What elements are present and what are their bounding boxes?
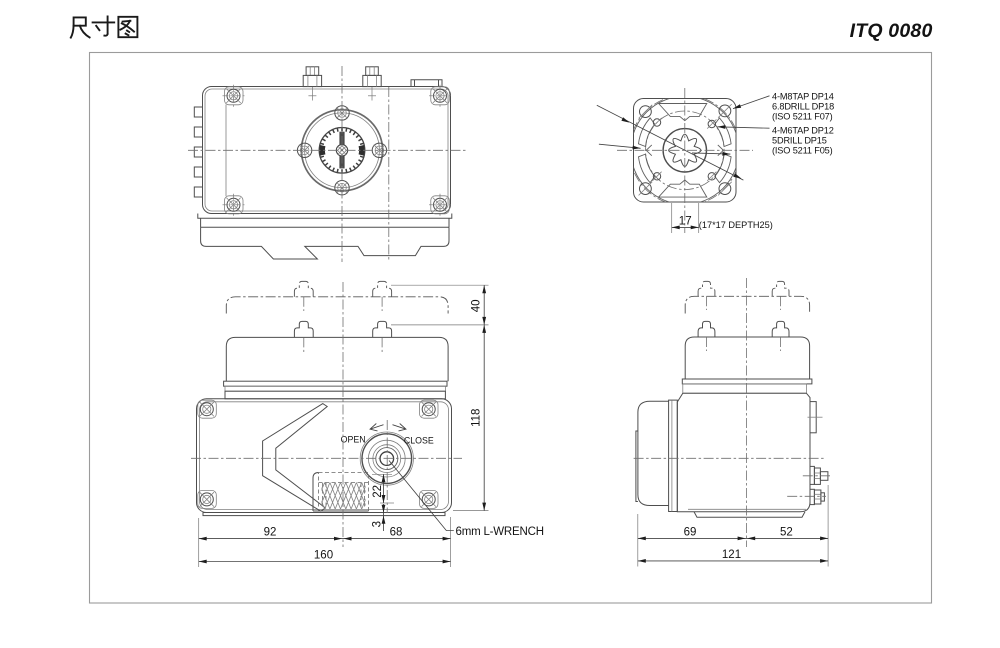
- svg-text:92: 92: [264, 527, 277, 539]
- svg-text:52: 52: [780, 526, 793, 538]
- svg-text:22: 22: [372, 485, 384, 498]
- svg-text:69: 69: [684, 526, 697, 538]
- svg-text:4-M8TAP DP14: 4-M8TAP DP14: [772, 92, 834, 102]
- svg-text:5DRILL DP15: 5DRILL DP15: [772, 136, 827, 146]
- svg-text:121: 121: [722, 549, 741, 561]
- svg-text:6mm L-WRENCH: 6mm L-WRENCH: [456, 526, 544, 538]
- svg-text:(17*17 DEPTH25): (17*17 DEPTH25): [699, 220, 773, 230]
- svg-text:(ISO 5211 F07): (ISO 5211 F07): [772, 112, 833, 122]
- svg-text:(ISO 5211 F05): (ISO 5211 F05): [772, 146, 833, 156]
- svg-text:4-M6TAP DP12: 4-M6TAP DP12: [772, 126, 834, 136]
- svg-text:68: 68: [390, 527, 403, 539]
- svg-text:118: 118: [471, 409, 483, 427]
- svg-text:OPEN: OPEN: [341, 434, 366, 444]
- svg-text:160: 160: [314, 550, 333, 562]
- svg-text:40: 40: [471, 300, 483, 313]
- svg-text:17: 17: [679, 216, 692, 228]
- svg-text:3: 3: [372, 521, 384, 527]
- svg-text:6.8DRILL DP18: 6.8DRILL DP18: [772, 102, 834, 112]
- svg-text:CLOSE: CLOSE: [404, 436, 434, 446]
- svg-text:ITQ 0080: ITQ 0080: [850, 20, 933, 42]
